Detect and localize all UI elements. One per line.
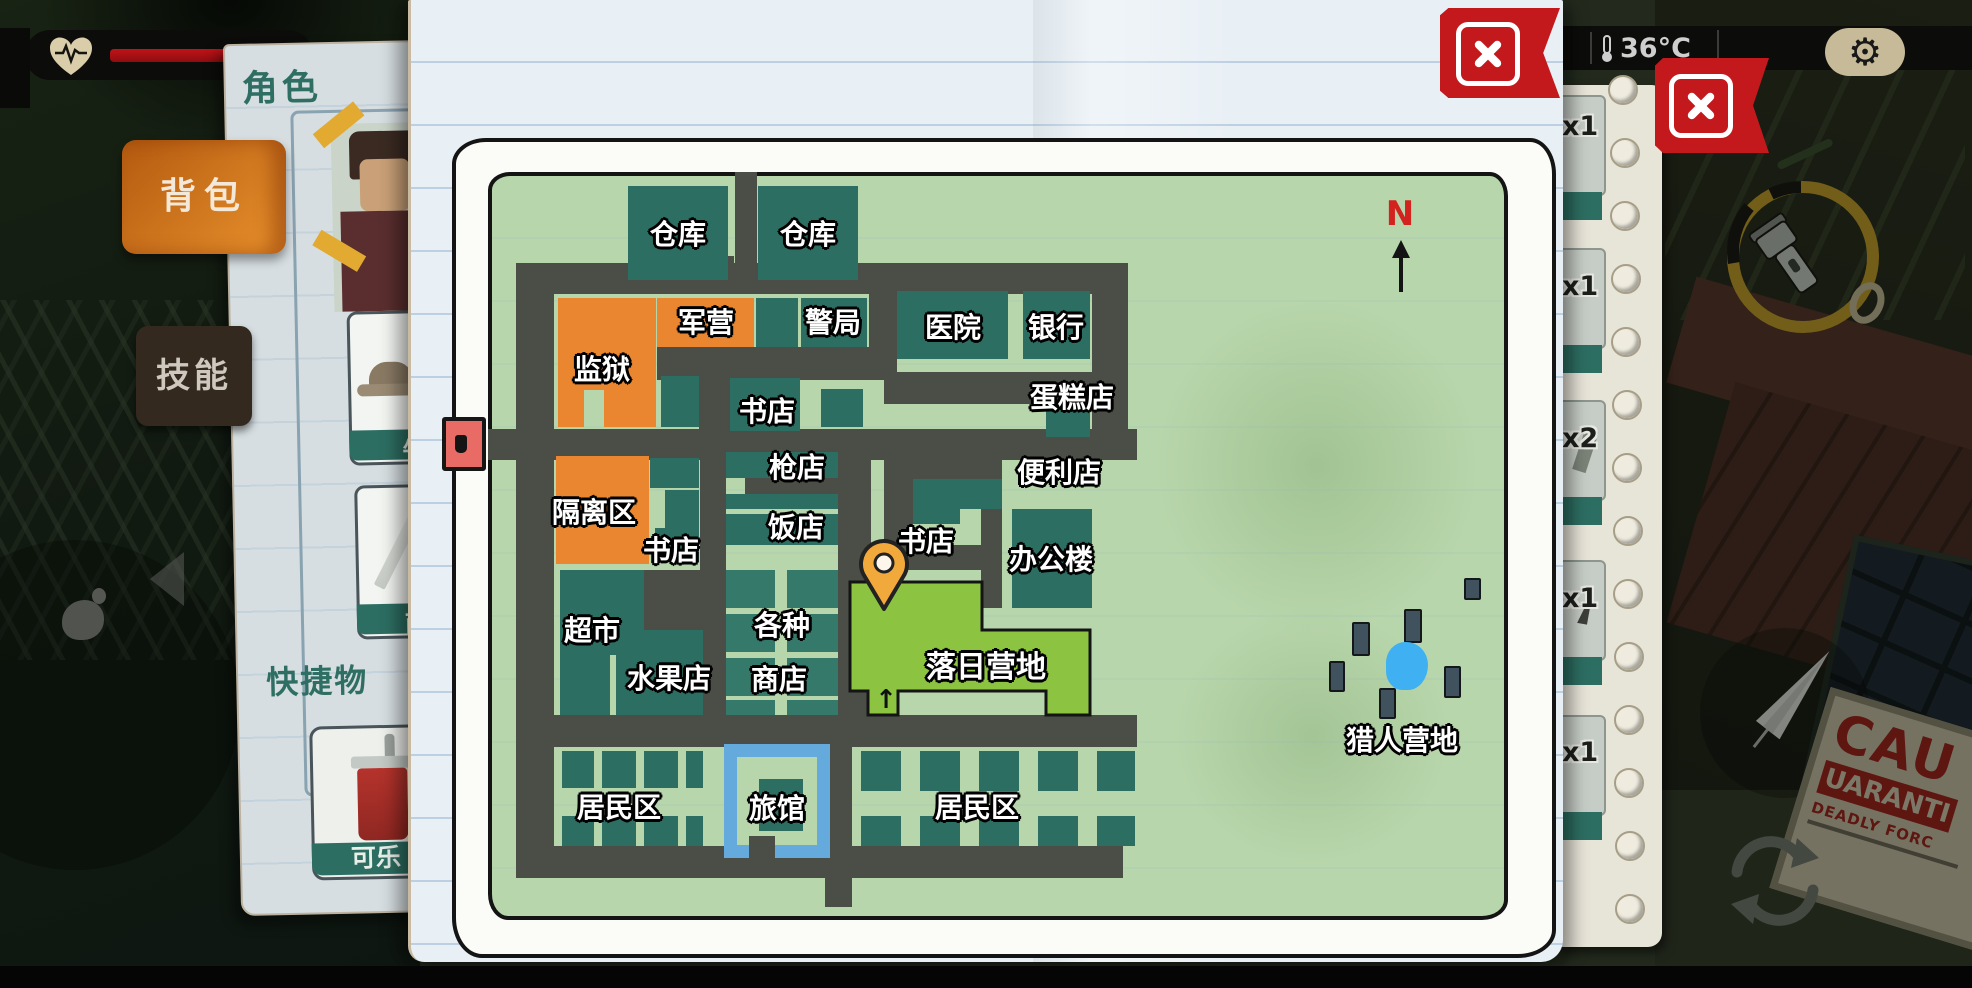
backpack-badge-1: x1	[1562, 111, 1598, 142]
tab-skills-label: 技能	[156, 356, 232, 396]
cola-label: 可乐	[351, 843, 402, 873]
binder-hole	[1614, 705, 1644, 735]
backpack-badge-2: x1	[1562, 271, 1598, 302]
binder-hole	[1614, 768, 1644, 798]
binder-hole	[1610, 201, 1640, 231]
topbar-divider-1	[1590, 32, 1592, 64]
backpack-badge-4: x1	[1562, 583, 1598, 614]
binder-hole	[1613, 516, 1643, 546]
backpack-page-edge: x1 x1 x2 x1 x1	[1556, 85, 1662, 947]
binder-hole	[1610, 138, 1640, 168]
close-icon	[1669, 74, 1733, 138]
backpack-badge-3: x2	[1562, 423, 1598, 454]
binder-hole	[1613, 579, 1643, 609]
binder-hole	[1612, 390, 1642, 420]
map-close-button[interactable]	[1440, 8, 1560, 98]
bottom-bar	[0, 966, 1972, 988]
tab-skills[interactable]: 技能	[136, 326, 252, 426]
binder-hole	[1611, 327, 1641, 357]
close-icon	[1456, 22, 1520, 86]
binder-hole	[1608, 75, 1638, 105]
character-face	[359, 158, 410, 211]
binder-hole	[1611, 264, 1641, 294]
thermometer-icon	[1598, 34, 1616, 64]
corner-black-panel	[0, 28, 30, 108]
game-screen: CAU UARANTI DEADLY FORC 36°C ⚙	[0, 0, 1972, 988]
tab-backpack[interactable]: 背包	[122, 140, 286, 254]
cola-cup	[357, 768, 408, 841]
binder-hole	[1612, 453, 1642, 483]
map-field[interactable]	[488, 172, 1508, 920]
tab-backpack-label: 背包	[160, 176, 248, 217]
binder-hole	[1615, 831, 1645, 861]
gear-icon: ⚙	[1848, 30, 1882, 74]
backpack-badge-5: x1	[1562, 737, 1598, 768]
map-field-lines	[492, 176, 1504, 916]
quick-items-heading: 快捷物	[266, 655, 369, 703]
character-title: 角色	[241, 58, 322, 112]
settings-button[interactable]: ⚙	[1825, 28, 1905, 76]
backpack-close-button[interactable]	[1655, 58, 1769, 153]
binder-hole	[1615, 894, 1645, 924]
binder-hole	[1614, 642, 1644, 672]
health-heart-icon	[47, 35, 95, 77]
